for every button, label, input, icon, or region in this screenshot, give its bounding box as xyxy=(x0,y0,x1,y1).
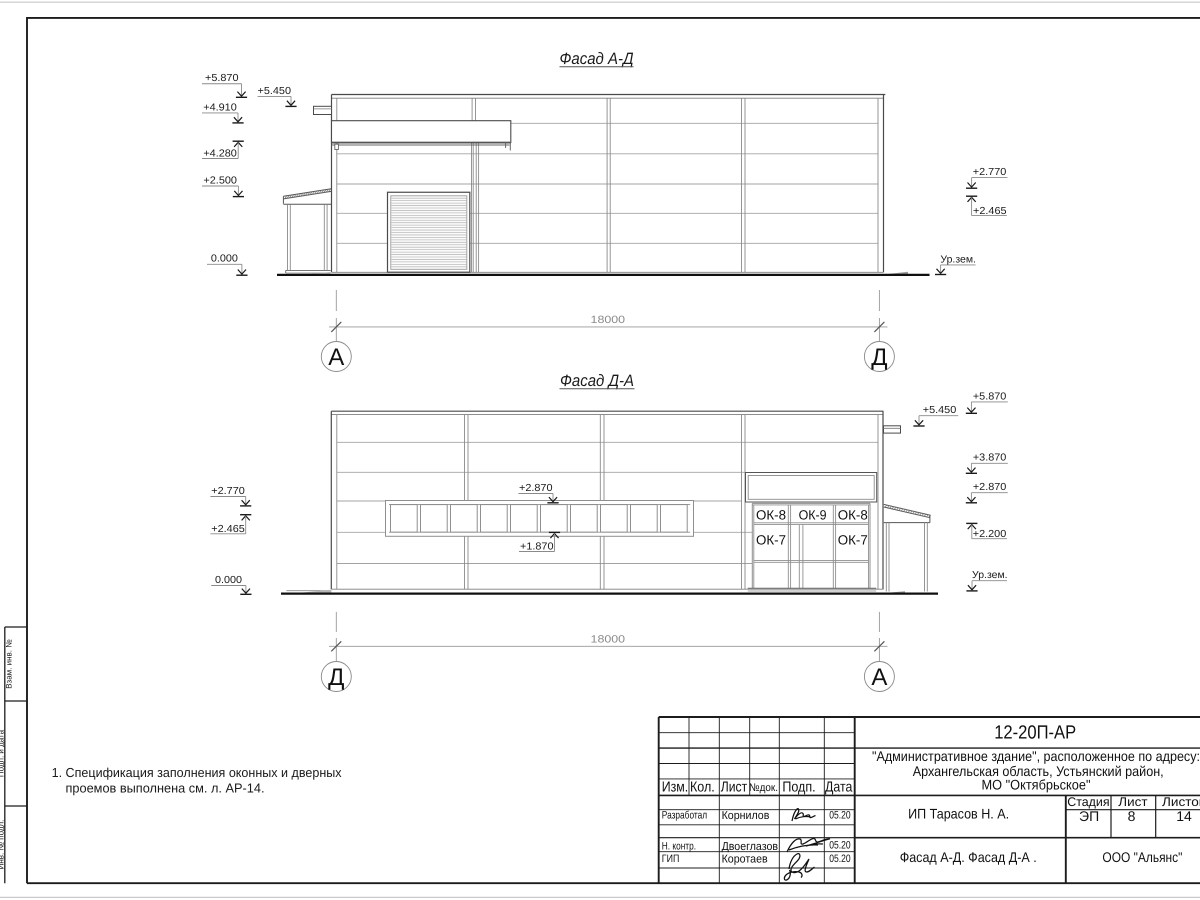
svg-text:Взам. инв. №: Взам. инв. № xyxy=(5,639,14,689)
svg-text:+5.870: +5.870 xyxy=(973,391,1007,402)
svg-text:ЭП: ЭП xyxy=(1079,808,1099,824)
svg-text:+5.870: +5.870 xyxy=(205,73,239,84)
svg-text:Кол.: Кол. xyxy=(690,780,715,796)
svg-text:Подп.: Подп. xyxy=(782,780,815,796)
svg-text:А: А xyxy=(871,664,887,691)
svg-text:+2.770: +2.770 xyxy=(973,167,1007,178)
svg-text:05.20: 05.20 xyxy=(829,839,850,851)
svg-text:14: 14 xyxy=(1176,808,1192,824)
svg-text:Фасад Д-А: Фасад Д-А xyxy=(560,372,634,390)
svg-text:8: 8 xyxy=(1128,808,1136,824)
svg-text:+2.465: +2.465 xyxy=(973,206,1007,217)
svg-text:ГИП: ГИП xyxy=(662,853,680,865)
svg-text:"Административное здание", рас: "Административное здание", расположенное… xyxy=(872,748,1200,764)
svg-text:0.000: 0.000 xyxy=(215,575,242,586)
svg-text:ОК-7: ОК-7 xyxy=(838,533,868,548)
svg-text:Дата: Дата xyxy=(825,780,853,796)
svg-text:ОК-8: ОК-8 xyxy=(838,508,868,523)
svg-text:ООО "Альянс": ООО "Альянс" xyxy=(1102,849,1182,865)
svg-text:+2.870: +2.870 xyxy=(519,483,553,494)
svg-text:05.20: 05.20 xyxy=(829,809,850,821)
svg-text:+2.870: +2.870 xyxy=(973,482,1007,493)
svg-text:+2.200: +2.200 xyxy=(973,529,1007,540)
svg-text:1. Спецификация заполнения око: 1. Спецификация заполнения оконных и две… xyxy=(52,765,342,780)
svg-text:+2.500: +2.500 xyxy=(203,175,237,186)
svg-text:Подп. и дата: Подп. и дата xyxy=(0,729,6,777)
svg-text:+2.770: +2.770 xyxy=(211,486,245,497)
svg-text:Ур.зем.: Ур.зем. xyxy=(940,254,976,265)
svg-text:Инв. № подл.: Инв. № подл. xyxy=(0,820,6,870)
svg-text:ОК-8: ОК-8 xyxy=(756,508,786,523)
svg-text:Изм.: Изм. xyxy=(662,780,689,796)
svg-text:+5.450: +5.450 xyxy=(258,86,292,97)
svg-text:№док.: №док. xyxy=(749,782,778,794)
svg-text:+2.465: +2.465 xyxy=(211,524,245,535)
svg-text:Н. контр.: Н. контр. xyxy=(662,841,696,853)
svg-text:12-20П-АР: 12-20П-АР xyxy=(994,723,1076,744)
svg-text:+3.870: +3.870 xyxy=(973,453,1007,464)
svg-text:0.000: 0.000 xyxy=(211,254,238,265)
svg-text:Ур.зем.: Ур.зем. xyxy=(972,570,1008,581)
svg-text:Корнилов: Корнилов xyxy=(722,810,770,822)
svg-text:МО "Октябрьское": МО "Октябрьское" xyxy=(982,776,1091,792)
svg-text:18000: 18000 xyxy=(591,314,626,326)
svg-text:+4.910: +4.910 xyxy=(203,102,237,113)
svg-text:Фасад А-Д: Фасад А-Д xyxy=(560,50,634,68)
svg-text:Коротаев: Коротаев xyxy=(722,853,768,865)
svg-text:18000: 18000 xyxy=(591,634,626,646)
svg-text:ОК-7: ОК-7 xyxy=(756,533,786,548)
svg-text:Д: Д xyxy=(328,664,344,691)
svg-text:Разработал: Разработал xyxy=(662,810,707,822)
svg-text:проемов выполнена см. л. АР-14: проемов выполнена см. л. АР-14. xyxy=(66,780,265,795)
svg-text:Фасад А-Д. Фасад Д-А .: Фасад А-Д. Фасад Д-А . xyxy=(900,849,1037,865)
svg-text:А: А xyxy=(328,344,344,371)
svg-text:+1.870: +1.870 xyxy=(520,542,554,553)
svg-text:Двоеглазов: Двоеглазов xyxy=(722,841,778,853)
svg-text:05.20: 05.20 xyxy=(829,853,850,865)
svg-text:ОК-9: ОК-9 xyxy=(799,508,827,523)
svg-text:ИП Тарасов Н. А.: ИП Тарасов Н. А. xyxy=(908,806,1009,822)
svg-text:Лист: Лист xyxy=(721,780,748,796)
svg-text:+4.280: +4.280 xyxy=(203,149,237,160)
svg-text:+5.450: +5.450 xyxy=(923,405,957,416)
svg-text:Д: Д xyxy=(871,344,887,371)
